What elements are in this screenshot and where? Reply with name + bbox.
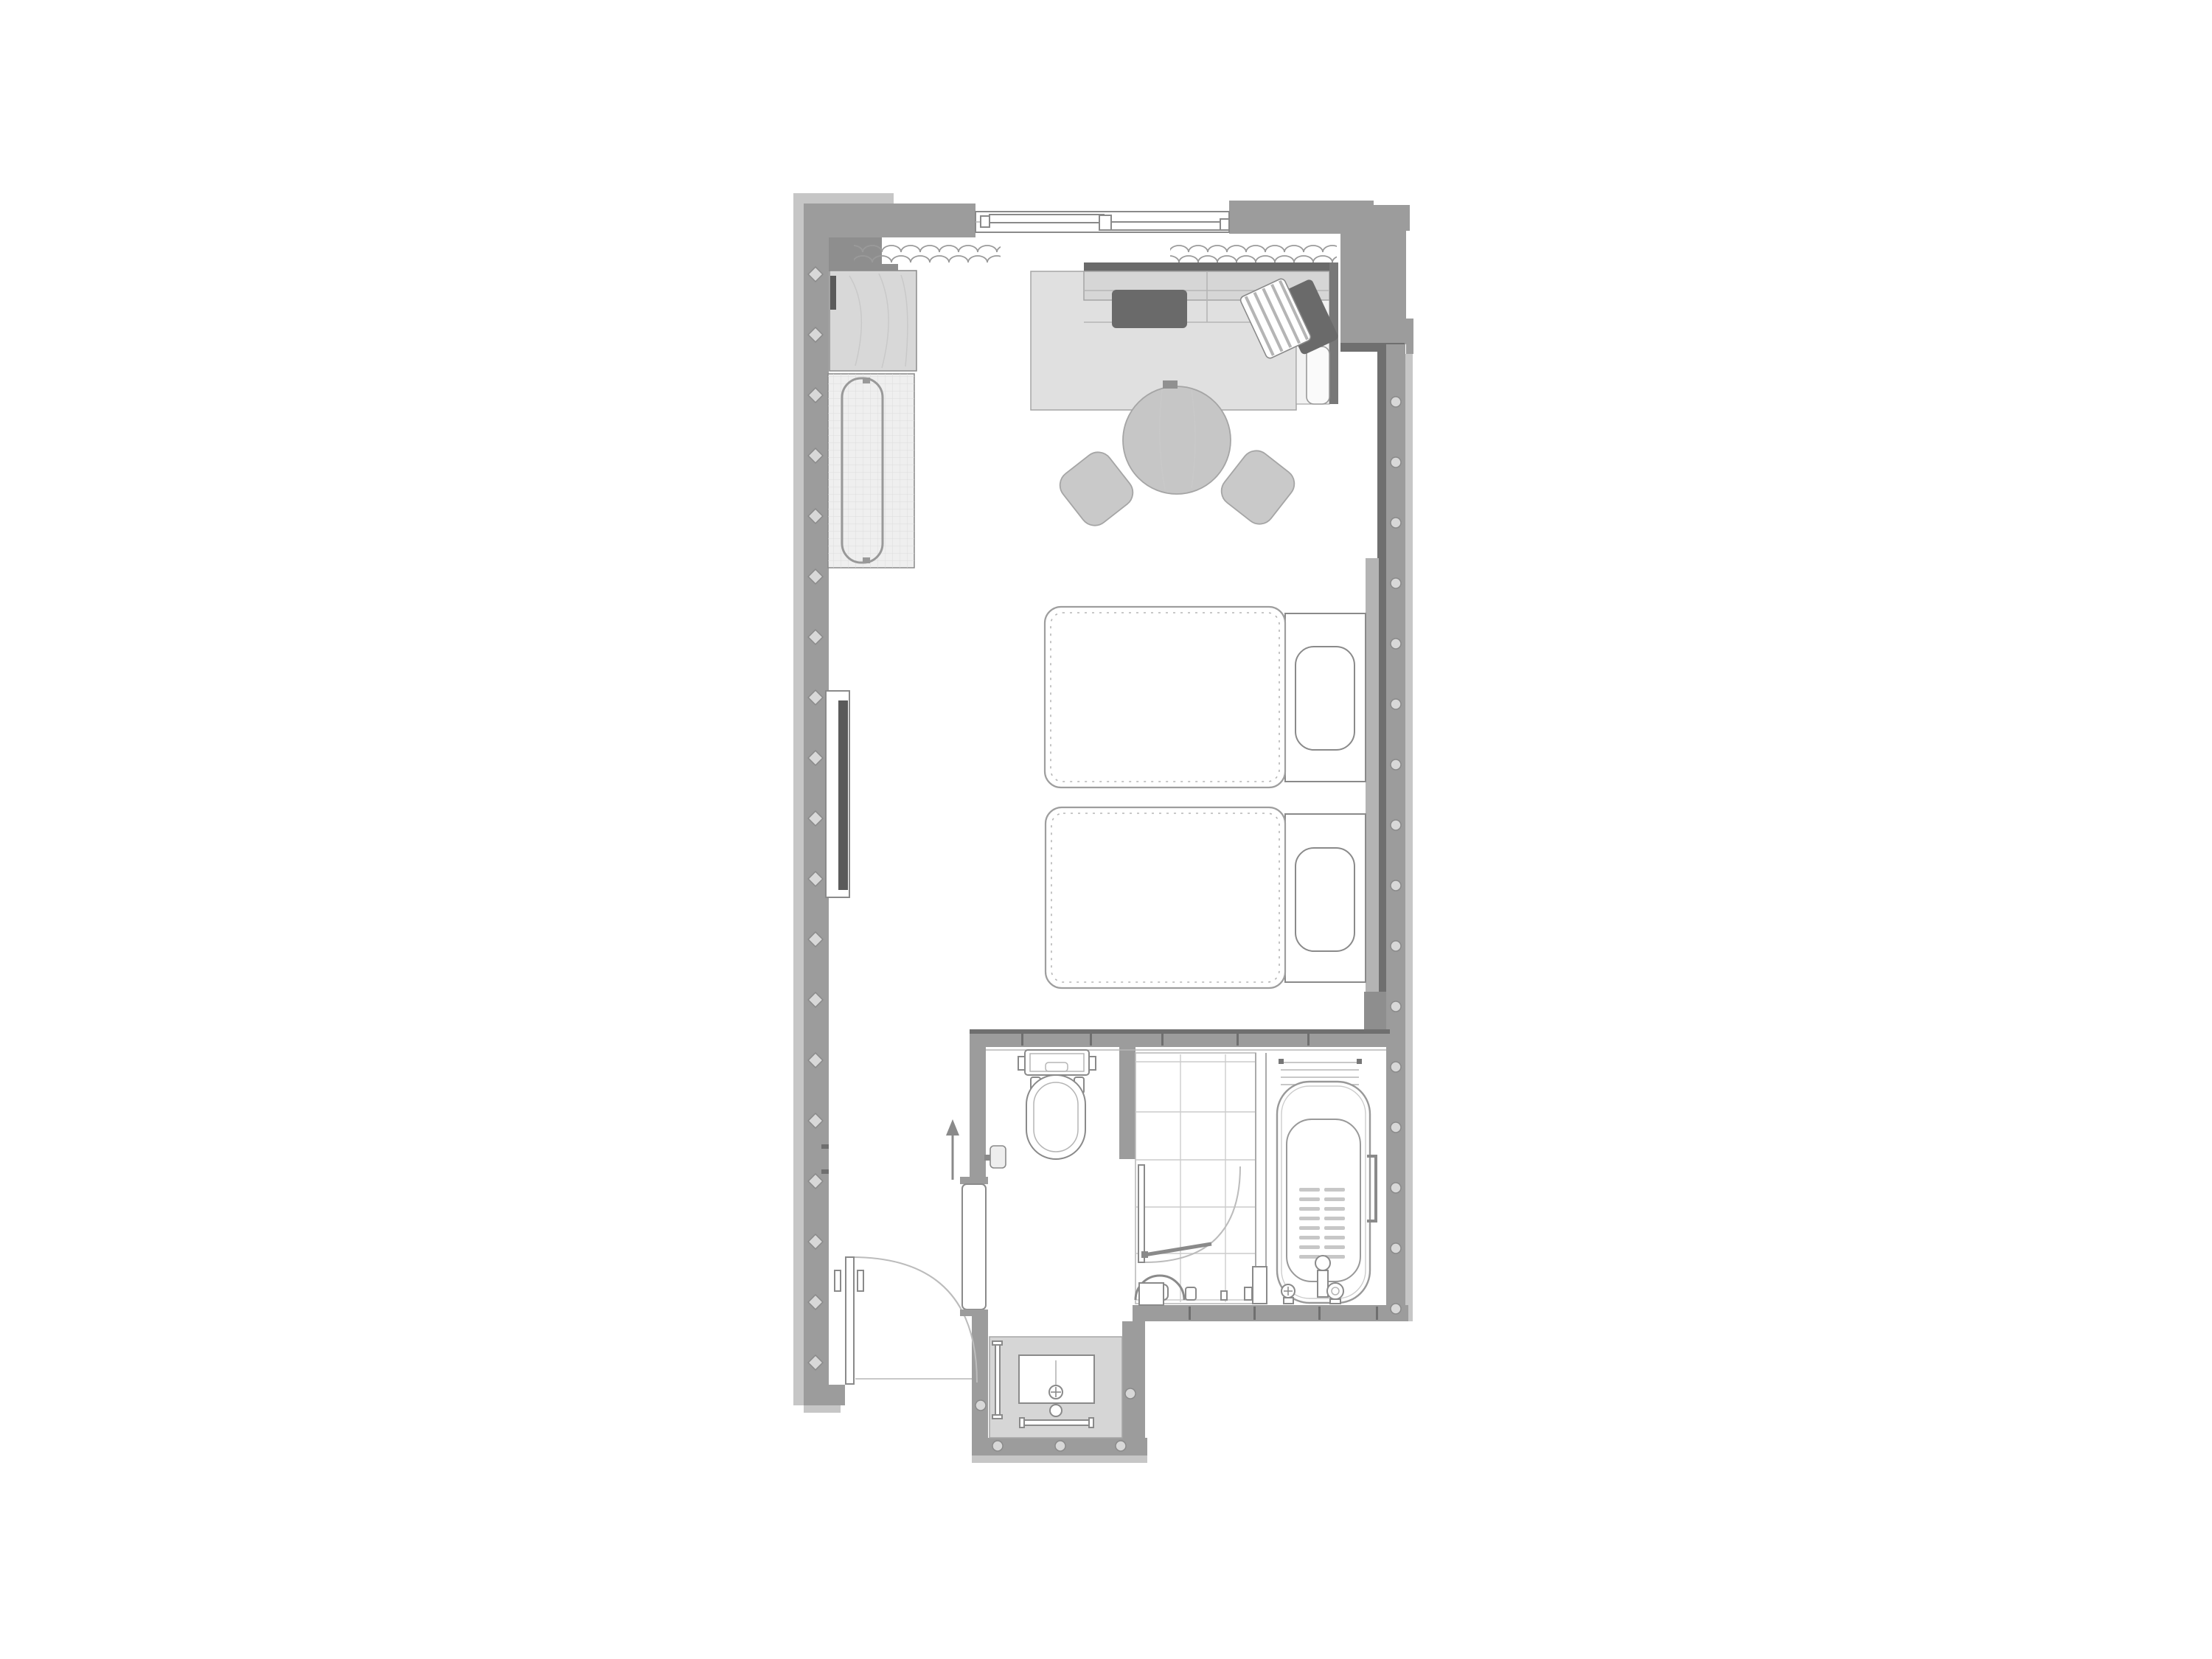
sofa-armrest bbox=[1307, 347, 1329, 404]
arrow-head bbox=[946, 1119, 959, 1135]
bed1-duvet bbox=[1045, 607, 1285, 787]
wall-marker-circle bbox=[1391, 518, 1401, 528]
bathroom-bottom-wall bbox=[1133, 1305, 1408, 1321]
twin-bed-1: Twin bed 1 Pillow bbox=[1045, 607, 1366, 787]
floor-plan-svg: Bedroom / lounge bbox=[0, 0, 2212, 1659]
table-top bbox=[1123, 386, 1231, 494]
toilet: Toilet bbox=[1018, 1050, 1096, 1159]
wall-marker-circle bbox=[1055, 1441, 1065, 1451]
wardrobe: Wardrobe bbox=[829, 264, 917, 371]
wall-marker-circle bbox=[1116, 1441, 1126, 1451]
right-wall bbox=[1386, 344, 1405, 1321]
tub-slat bbox=[1299, 1226, 1320, 1230]
bed2-pillow: Pillow bbox=[1295, 848, 1354, 951]
wall-marker-circle bbox=[1391, 1183, 1401, 1193]
wall-marker-circle bbox=[1391, 1243, 1401, 1253]
bench-strap-bottom bbox=[863, 557, 870, 563]
top-wall-right bbox=[1229, 201, 1374, 234]
luggage-bench: Luggage bench bbox=[828, 374, 914, 568]
towel-bar-cap-right bbox=[1089, 1418, 1093, 1427]
tub-slat bbox=[1299, 1197, 1320, 1201]
tub-slat bbox=[1324, 1188, 1345, 1192]
wall-marker-circle bbox=[1391, 941, 1401, 951]
tub-slat bbox=[1324, 1245, 1345, 1249]
top-wall-left bbox=[804, 204, 975, 237]
tub-slat bbox=[1299, 1188, 1320, 1192]
tub-slat bbox=[1299, 1207, 1320, 1211]
top-right-step bbox=[1374, 205, 1410, 231]
right-wall-tab bbox=[1406, 319, 1413, 354]
door-handle-stem bbox=[984, 1155, 990, 1161]
wall-marker-circle bbox=[992, 1441, 1003, 1451]
vanity-bottom-wall-outer bbox=[972, 1455, 1147, 1463]
washroom-west-wall-upper bbox=[970, 1047, 986, 1178]
shower-door-leaf bbox=[1138, 1165, 1144, 1262]
top-right-column bbox=[1340, 231, 1406, 344]
tub-slat bbox=[1324, 1207, 1345, 1211]
wall-marker-circle bbox=[1391, 880, 1401, 891]
toilet-tab-left bbox=[1018, 1057, 1025, 1070]
window-end-left bbox=[981, 216, 990, 227]
bathroom-top-wall-edge bbox=[970, 1029, 1390, 1034]
entry-door-hinge-a bbox=[835, 1270, 841, 1291]
headboard-panel: Headboard panel bbox=[1366, 558, 1379, 992]
window-sash-left bbox=[990, 215, 1104, 223]
vanity-drain bbox=[1050, 1405, 1062, 1416]
entry-door-leaf bbox=[846, 1257, 854, 1384]
tub-slat bbox=[1324, 1217, 1345, 1220]
washroom-door-leaf bbox=[962, 1184, 986, 1310]
window-end-right bbox=[1220, 219, 1229, 230]
wall-marker-circle bbox=[1125, 1388, 1135, 1399]
curtain-right bbox=[1170, 242, 1337, 264]
beds: Headboard panel Twin bed 1 Pillow Twin b… bbox=[1045, 558, 1379, 992]
right-wall-outer bbox=[1405, 354, 1413, 1321]
shower-room: Shower room Shower door swing Shower sea… bbox=[1135, 1053, 1256, 1304]
wall-marker-circle bbox=[1391, 759, 1401, 770]
entry-door-swing-arc bbox=[852, 1257, 977, 1382]
towel-bar: Towel bar bbox=[1023, 1420, 1090, 1425]
bath-valve-right bbox=[1327, 1283, 1343, 1299]
wardrobe-hinge bbox=[830, 276, 836, 310]
window-sash-right bbox=[1107, 222, 1220, 230]
vanity: Washbasin counter Basin Towel bar bbox=[990, 1337, 1122, 1438]
side-bar-cap-top bbox=[992, 1341, 1002, 1345]
mirror-panel: Full-length mirror panel bbox=[826, 691, 849, 897]
towel-rails: Towel rails bbox=[1279, 1059, 1362, 1085]
cushion-center: Dark cushion bbox=[1112, 290, 1187, 328]
floor-plan-canvas: Bedroom / lounge bbox=[0, 0, 2212, 1659]
bath-faucet: Bath faucet bbox=[1315, 1256, 1330, 1270]
window: Sliding window bbox=[975, 212, 1229, 232]
wall-marker-circle bbox=[1391, 397, 1401, 407]
curtains: Curtains bbox=[854, 242, 1337, 264]
sofa-back-rail bbox=[1084, 262, 1338, 271]
shower-fitting-b bbox=[1245, 1287, 1252, 1300]
entry-arrow: Entry direction arrow bbox=[946, 1119, 959, 1180]
table-item bbox=[1163, 380, 1178, 389]
bath-faucet-stem bbox=[1318, 1270, 1328, 1297]
bed1-pillow: Pillow bbox=[1295, 647, 1354, 750]
wall-marker-circle bbox=[975, 1400, 986, 1411]
door-jamb-top bbox=[960, 1177, 988, 1184]
tub-slat bbox=[1324, 1236, 1345, 1239]
shower-floor bbox=[1135, 1053, 1256, 1304]
door-jamb-bottom bbox=[960, 1310, 988, 1316]
toilet-bowl bbox=[1026, 1075, 1085, 1159]
tub-slat bbox=[1299, 1217, 1320, 1220]
shower-fitting-a bbox=[1221, 1291, 1227, 1300]
shower-threshold bbox=[1139, 1283, 1164, 1305]
entry-door-hinge-b bbox=[858, 1270, 863, 1291]
right-wall-stub bbox=[1364, 992, 1386, 1029]
towel-bar-cap-left bbox=[1020, 1418, 1024, 1427]
wall-marker-circle bbox=[1391, 457, 1401, 467]
left-wall-foot-outer bbox=[804, 1405, 841, 1413]
bathtub-room: Bathtub room Towel rails Bathtub Bath fa… bbox=[1277, 1059, 1376, 1304]
hand-shower-head bbox=[1141, 1251, 1148, 1258]
shower-west-wall bbox=[1119, 1047, 1135, 1159]
left-wall-outer bbox=[793, 223, 804, 1405]
wall-marker-circle bbox=[1391, 1304, 1401, 1314]
bath-valve-right-base bbox=[1330, 1299, 1340, 1304]
window-latch bbox=[1099, 215, 1111, 230]
wall-marker-circle bbox=[1391, 1122, 1401, 1133]
tub-slat bbox=[1299, 1236, 1320, 1239]
partition-post bbox=[1253, 1267, 1267, 1304]
wall-marker-circle bbox=[1391, 820, 1401, 830]
entry-door: Entrance door bbox=[835, 1257, 977, 1384]
bench-strap-top bbox=[863, 378, 870, 383]
tub-slat bbox=[1324, 1226, 1345, 1230]
side-towel-bar bbox=[995, 1343, 1000, 1416]
toilet-tab-right bbox=[1089, 1057, 1096, 1070]
tub-slat bbox=[1299, 1245, 1320, 1249]
wall-marker-circle bbox=[1391, 699, 1401, 709]
shower-mixer bbox=[1186, 1287, 1196, 1300]
side-bar-cap-bottom bbox=[992, 1415, 1002, 1419]
left-wall-foot bbox=[804, 1385, 845, 1405]
twin-bed-2: Twin bed 2 Pillow bbox=[1046, 807, 1366, 988]
wall-marker-circle bbox=[1391, 578, 1401, 588]
curtain-left bbox=[854, 242, 1001, 264]
tub-slat bbox=[1324, 1197, 1345, 1201]
bed2-duvet bbox=[1046, 807, 1285, 988]
bath-valve-left-base bbox=[1284, 1298, 1293, 1304]
door-handle bbox=[990, 1146, 1006, 1168]
washroom-west-wall-lower bbox=[972, 1316, 988, 1438]
mirror-glass bbox=[838, 700, 848, 890]
wall-marker-circle bbox=[1391, 1001, 1401, 1012]
wall-marker-circle bbox=[1391, 639, 1401, 649]
vanity-east-wall bbox=[1122, 1321, 1145, 1455]
wall-marker-circle bbox=[1391, 1062, 1401, 1072]
